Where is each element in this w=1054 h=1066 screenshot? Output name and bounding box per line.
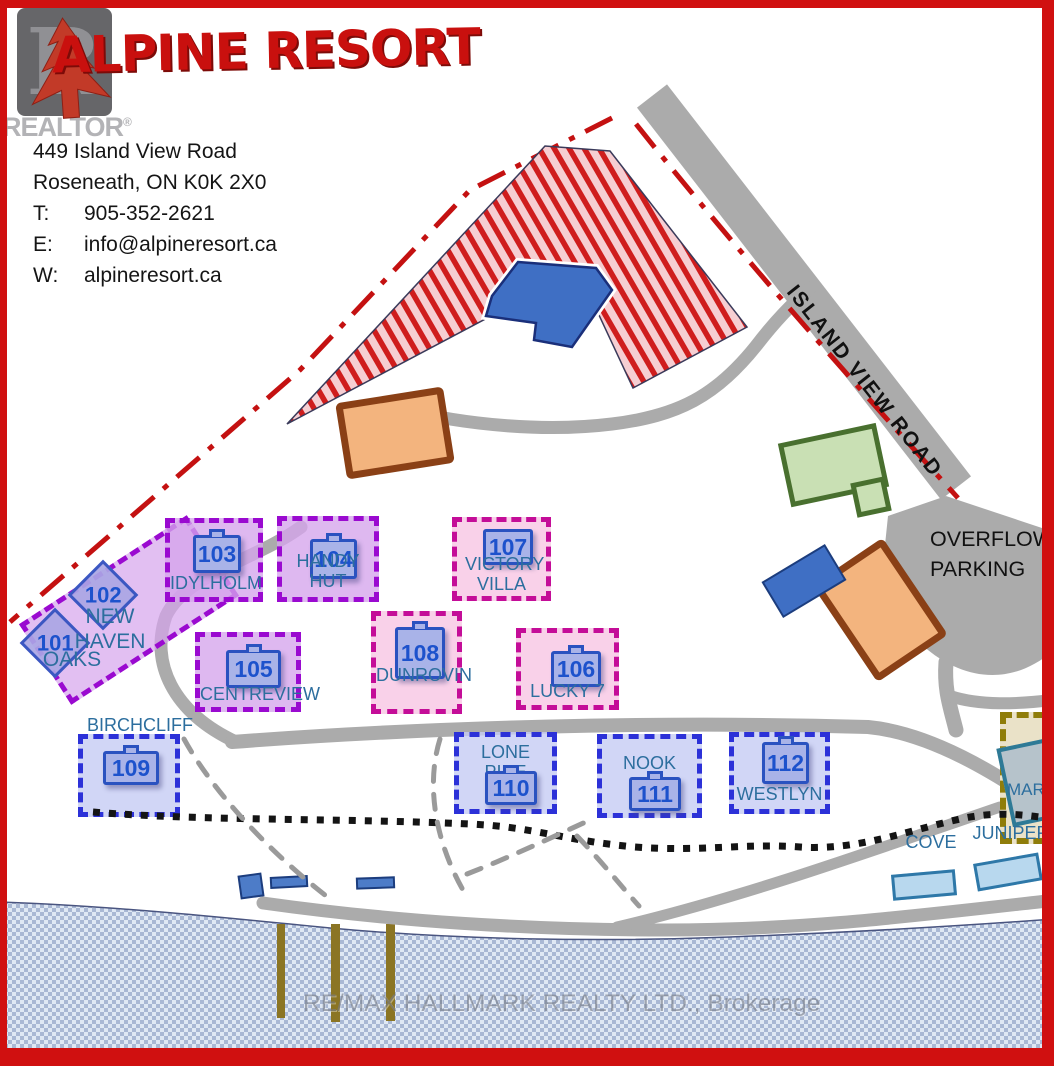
cabin-109-name: BIRCHCLIFF bbox=[87, 715, 179, 735]
phone-row: T: 905-352-2621 bbox=[33, 198, 277, 229]
cove-label: COVE bbox=[898, 833, 964, 852]
cabin-105-name: CENTREVIEW bbox=[200, 684, 296, 704]
contact-block: 449 Island View Road Roseneath, ON K0K 2… bbox=[33, 136, 277, 291]
frame-bottom bbox=[0, 1048, 1054, 1066]
frame-left bbox=[0, 0, 7, 1066]
cabin-103: 103 IDYLHOLM bbox=[165, 518, 263, 602]
overflow-parking-label: OVERFLOW PARKING bbox=[930, 524, 1053, 584]
cabin-109: 109 BIRCHCLIFF bbox=[78, 734, 180, 817]
cabin-112: 112 WESTLYN bbox=[729, 732, 830, 814]
orange-building-west bbox=[339, 390, 451, 475]
cabin-108: 108 DUNROVIN bbox=[371, 611, 462, 714]
email-row: E: info@alpineresort.ca bbox=[33, 229, 277, 260]
resort-title: ALPINE RESORT bbox=[51, 18, 480, 85]
cabin-107-name: VICTORY VILLA bbox=[457, 554, 546, 594]
frame-top bbox=[0, 0, 1054, 8]
cove-dock bbox=[891, 869, 957, 900]
cabin-112-badge: 112 bbox=[762, 742, 809, 784]
green-shed bbox=[853, 479, 889, 515]
parking-east-road bbox=[950, 696, 1052, 703]
address-line2: Roseneath, ON K0K 2X0 bbox=[33, 167, 277, 198]
phone-value: 905-352-2621 bbox=[84, 198, 215, 229]
cabin-111: NOOK 111 bbox=[597, 734, 702, 818]
cabin-108-name: DUNROVIN bbox=[376, 665, 457, 685]
cabin-103-badge: 103 bbox=[193, 535, 241, 573]
juniper-label: JUNIPER bbox=[970, 824, 1052, 843]
cabin-105-badge: 105 bbox=[226, 650, 281, 688]
web-row: W: alpineresort.ca bbox=[33, 260, 277, 291]
cabin-110: LONE PINE 110 bbox=[454, 732, 557, 814]
cabin-104-name: HANDY HUT bbox=[282, 551, 374, 591]
email-value: info@alpineresort.ca bbox=[84, 229, 277, 260]
cabin-112-name: WESTLYN bbox=[734, 784, 825, 804]
cabin-102-name: NEW HAVEN bbox=[62, 604, 158, 654]
cabin-111-name: NOOK bbox=[602, 753, 697, 773]
cabin-101-name: OAKS bbox=[30, 648, 114, 672]
cabin-105: 105 CENTREVIEW bbox=[195, 632, 301, 712]
web-label: W: bbox=[33, 260, 84, 291]
cabin-106: 106 LUCKY 7 bbox=[516, 628, 619, 710]
resort-map: ISLAND VIEW ROAD R REALTOR® ALPINE RESOR… bbox=[0, 0, 1054, 1066]
phone-label: T: bbox=[33, 198, 84, 229]
cabin-111-badge: 111 bbox=[629, 777, 681, 811]
email-label: E: bbox=[33, 229, 84, 260]
frame-right bbox=[1042, 0, 1054, 1066]
cabin-107: 107 VICTORY VILLA bbox=[452, 517, 551, 601]
web-value: alpineresort.ca bbox=[84, 260, 222, 291]
blue-lodge bbox=[486, 262, 612, 347]
cabin-103-name: IDYLHOLM bbox=[170, 573, 258, 593]
cabin-106-name: LUCKY 7 bbox=[521, 681, 614, 701]
beach-docks-small bbox=[239, 874, 395, 899]
cabin-104: 104 HANDY HUT bbox=[277, 516, 379, 602]
brokerage-watermark: RE/MAX HALLMARK REALTY LTD., Brokerage bbox=[303, 990, 820, 1018]
address-line1: 449 Island View Road bbox=[33, 136, 277, 167]
cabin-110-badge: 110 bbox=[485, 771, 537, 805]
cabin-109-badge: 109 bbox=[103, 751, 159, 785]
